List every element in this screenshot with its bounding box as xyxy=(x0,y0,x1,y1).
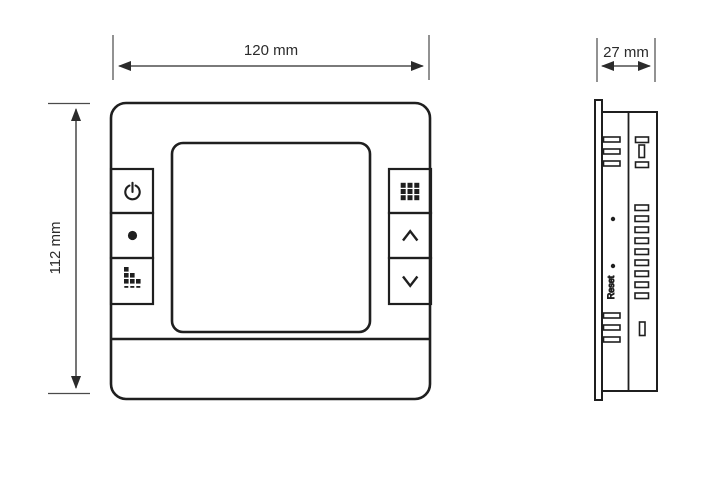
reset-label: Reset xyxy=(606,275,616,299)
front-width-label: 120 mm xyxy=(244,42,298,59)
display-screen xyxy=(172,143,370,332)
side-depth-label: 27 mm xyxy=(603,44,649,61)
mount-slots-top-right xyxy=(636,137,649,168)
front-view xyxy=(111,103,431,399)
side-front-plate xyxy=(595,100,602,400)
reset-hole xyxy=(611,264,615,268)
down-button xyxy=(389,258,431,304)
front-height-dimension: 112 mm xyxy=(47,104,90,394)
front-height-label: 112 mm xyxy=(47,221,64,274)
front-width-dimension: 120 mm xyxy=(113,35,429,80)
thermostat-dimension-diagram: 120 mm 112 mm 27 mm xyxy=(0,0,720,480)
menu-grid-icon xyxy=(401,183,420,200)
vent-slot-column-right xyxy=(635,205,649,299)
power-icon xyxy=(125,183,139,199)
side-view: Reset xyxy=(595,100,657,400)
side-depth-dimension: 27 mm xyxy=(597,38,655,82)
fan-speed-button xyxy=(111,258,153,304)
up-button xyxy=(389,213,431,258)
device-outline xyxy=(111,103,430,399)
chevron-down-icon xyxy=(403,277,417,286)
indicator-button xyxy=(111,213,153,258)
fan-speed-icon xyxy=(124,267,141,288)
chevron-up-icon xyxy=(403,231,417,240)
dot-icon xyxy=(128,231,137,240)
vent-slots-bottom-left xyxy=(604,313,621,342)
sensor-hole xyxy=(611,217,615,221)
menu-button xyxy=(389,169,431,213)
vent-slots-top-left xyxy=(604,137,621,166)
diagram-canvas: 120 mm 112 mm 27 mm xyxy=(0,0,720,480)
mount-slot-bottom-right xyxy=(640,322,646,336)
power-button xyxy=(111,169,153,213)
